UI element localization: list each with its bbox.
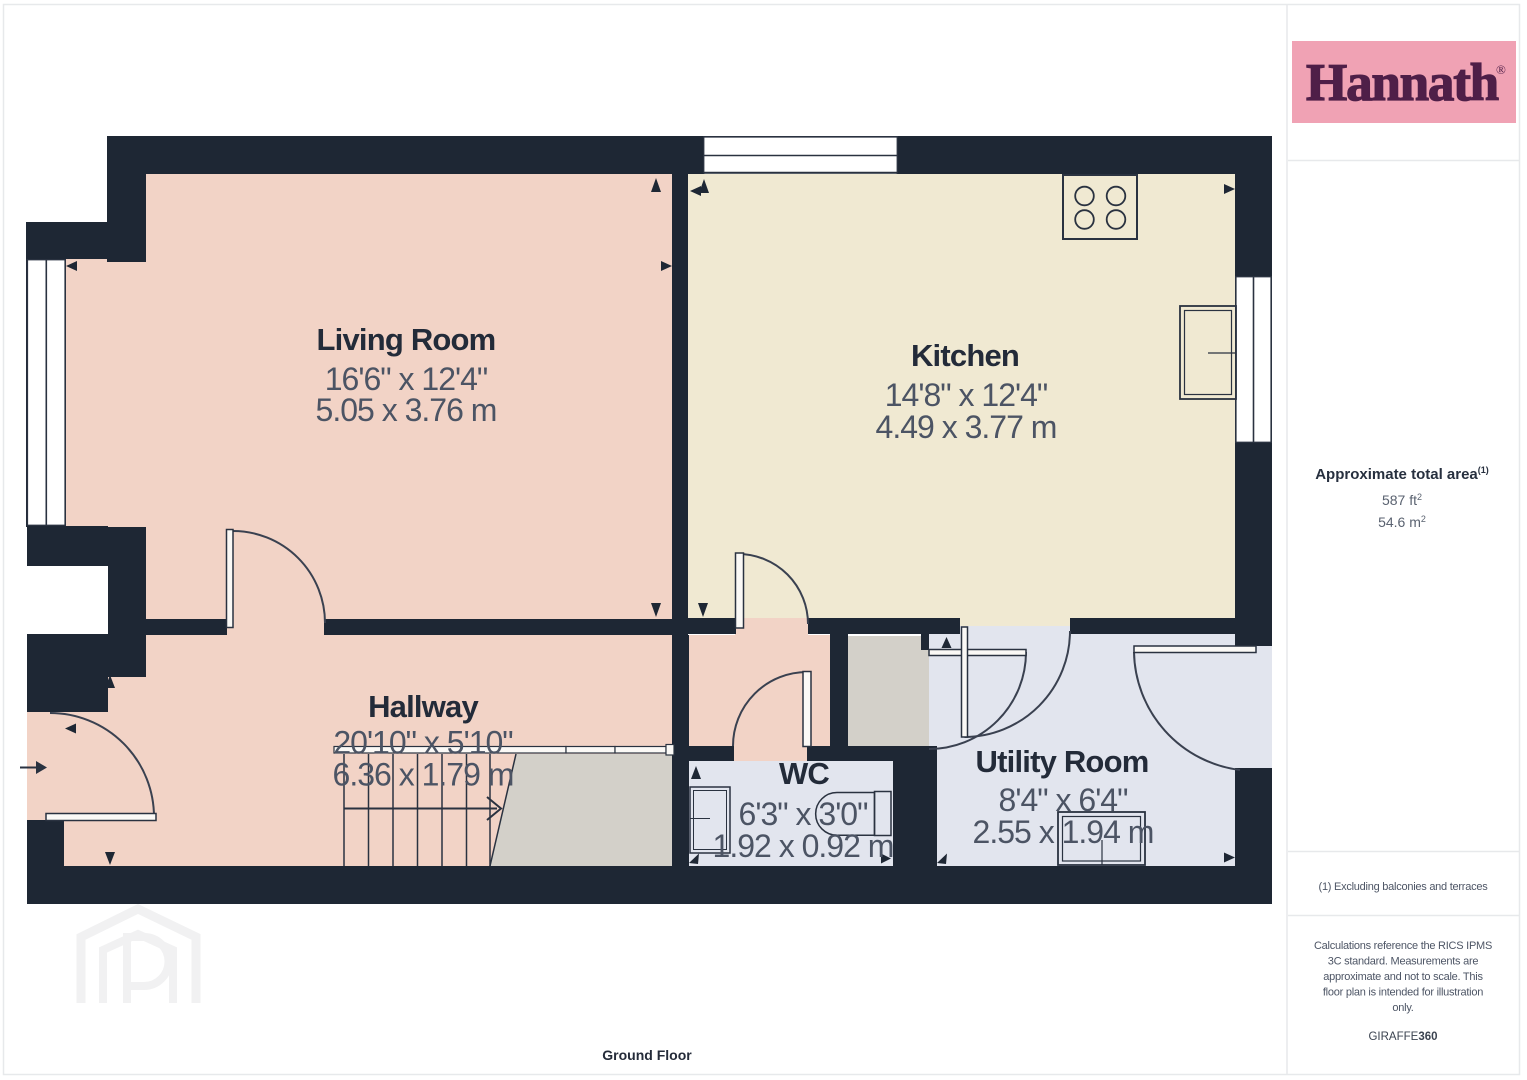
- svg-text:only.: only.: [1392, 1002, 1413, 1014]
- svg-text:587 ft2: 587 ft2: [1382, 492, 1422, 508]
- svg-text:54.6 m2: 54.6 m2: [1378, 514, 1426, 530]
- svg-text:20'10" x 5'10": 20'10" x 5'10": [333, 725, 512, 761]
- svg-text:5.05 x 3.76 m: 5.05 x 3.76 m: [316, 392, 497, 428]
- svg-text:GIRAFFE360: GIRAFFE360: [1368, 1031, 1437, 1043]
- svg-text:Utility Room: Utility Room: [976, 744, 1149, 779]
- svg-text:Calculations reference the RIC: Calculations reference the RICS IPMS: [1314, 940, 1492, 952]
- svg-text:Living Room: Living Room: [317, 322, 496, 357]
- svg-text:4.49 x 3.77 m: 4.49 x 3.77 m: [876, 409, 1057, 445]
- svg-text:WC: WC: [779, 756, 829, 791]
- svg-text:Hallway: Hallway: [368, 689, 479, 724]
- svg-text:floor plan is intended for ill: floor plan is intended for illustration: [1323, 987, 1483, 999]
- svg-text:®: ®: [1496, 62, 1506, 77]
- svg-text:8'4" x 6'4": 8'4" x 6'4": [999, 782, 1128, 818]
- svg-text:(1) Excluding balconies and te: (1) Excluding balconies and terraces: [1319, 881, 1489, 893]
- svg-text:3C standard. Measurements are: 3C standard. Measurements are: [1328, 956, 1479, 968]
- svg-text:14'8" x 12'4": 14'8" x 12'4": [885, 377, 1048, 413]
- svg-text:Kitchen: Kitchen: [911, 338, 1019, 373]
- svg-text:Hannath: Hannath: [1306, 54, 1499, 112]
- svg-text:1.92 x 0.92 m: 1.92 x 0.92 m: [713, 828, 894, 864]
- svg-text:6'3" x 3'0": 6'3" x 3'0": [739, 796, 868, 832]
- svg-text:Approximate total area(1): Approximate total area(1): [1315, 465, 1489, 483]
- svg-text:approximate and not to scale.: approximate and not to scale. This: [1323, 971, 1483, 983]
- svg-text:Ground Floor: Ground Floor: [602, 1047, 692, 1063]
- svg-text:6.36 x 1.79 m: 6.36 x 1.79 m: [333, 757, 514, 793]
- svg-text:2.55 x 1.94 m: 2.55 x 1.94 m: [973, 814, 1154, 850]
